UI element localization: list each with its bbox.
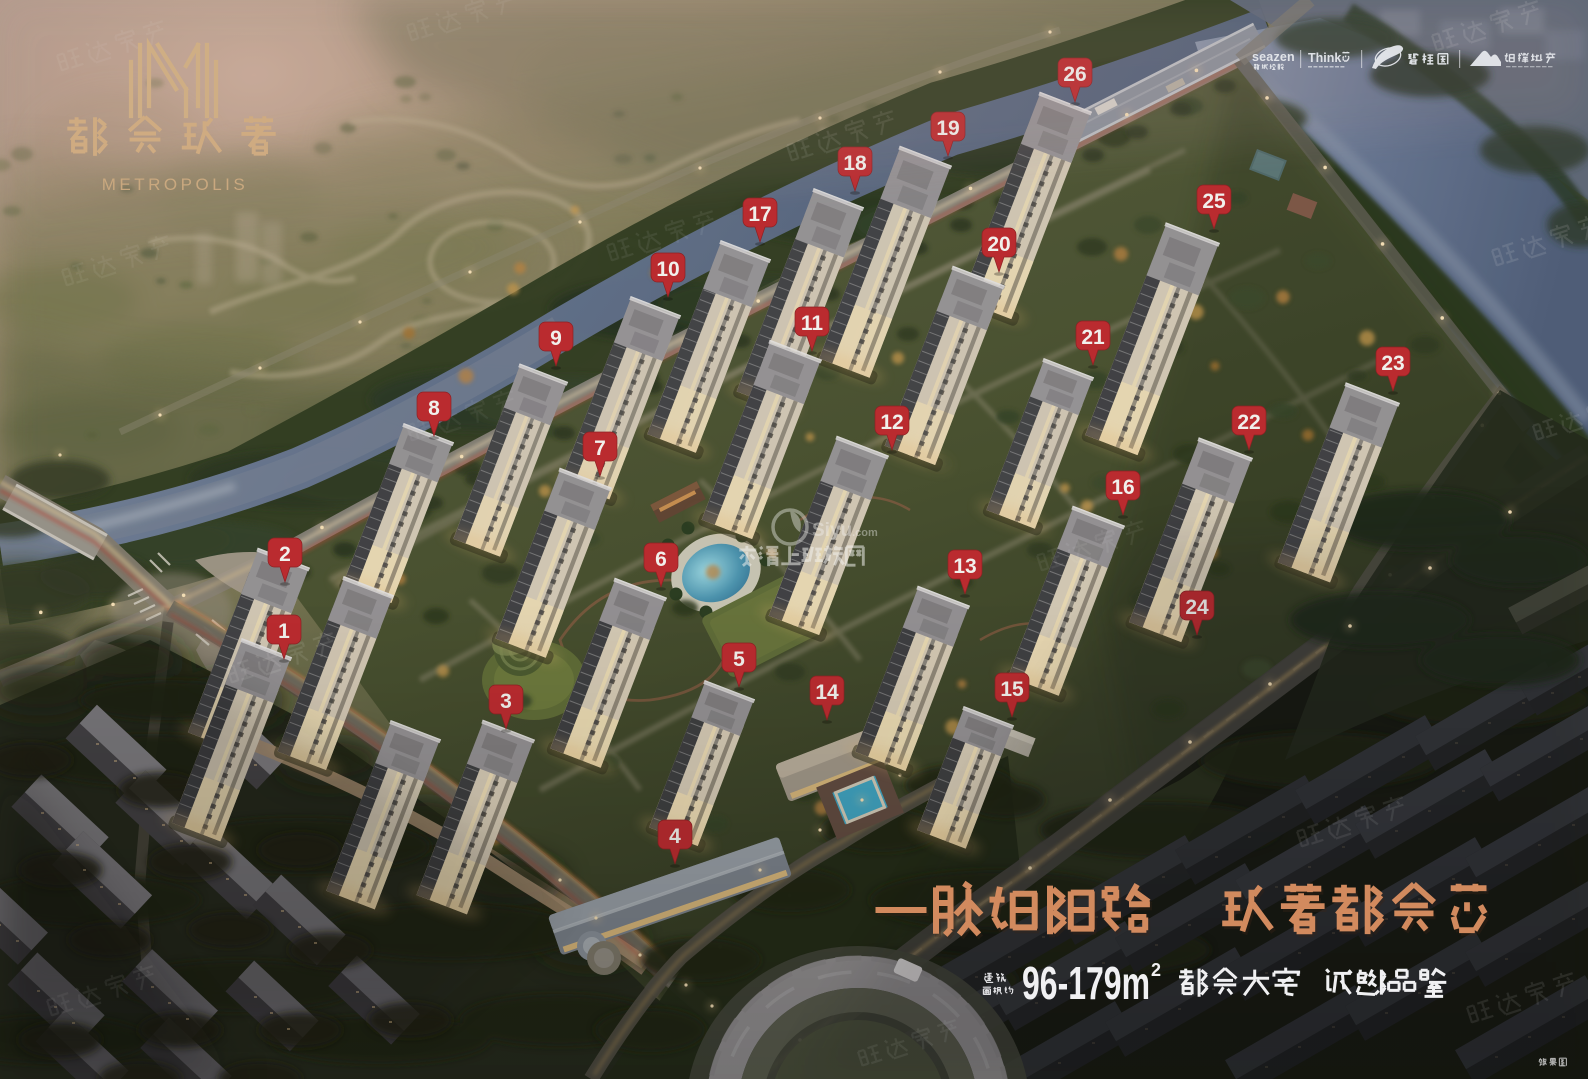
svg-text:96-179m: 96-179m bbox=[1022, 957, 1150, 1009]
svg-text:Think: Think bbox=[1308, 51, 1341, 65]
svg-text:METROPOLIS: METROPOLIS bbox=[102, 175, 248, 194]
svg-text:2: 2 bbox=[1151, 960, 1161, 980]
svg-text:seazen: seazen bbox=[1252, 50, 1295, 64]
